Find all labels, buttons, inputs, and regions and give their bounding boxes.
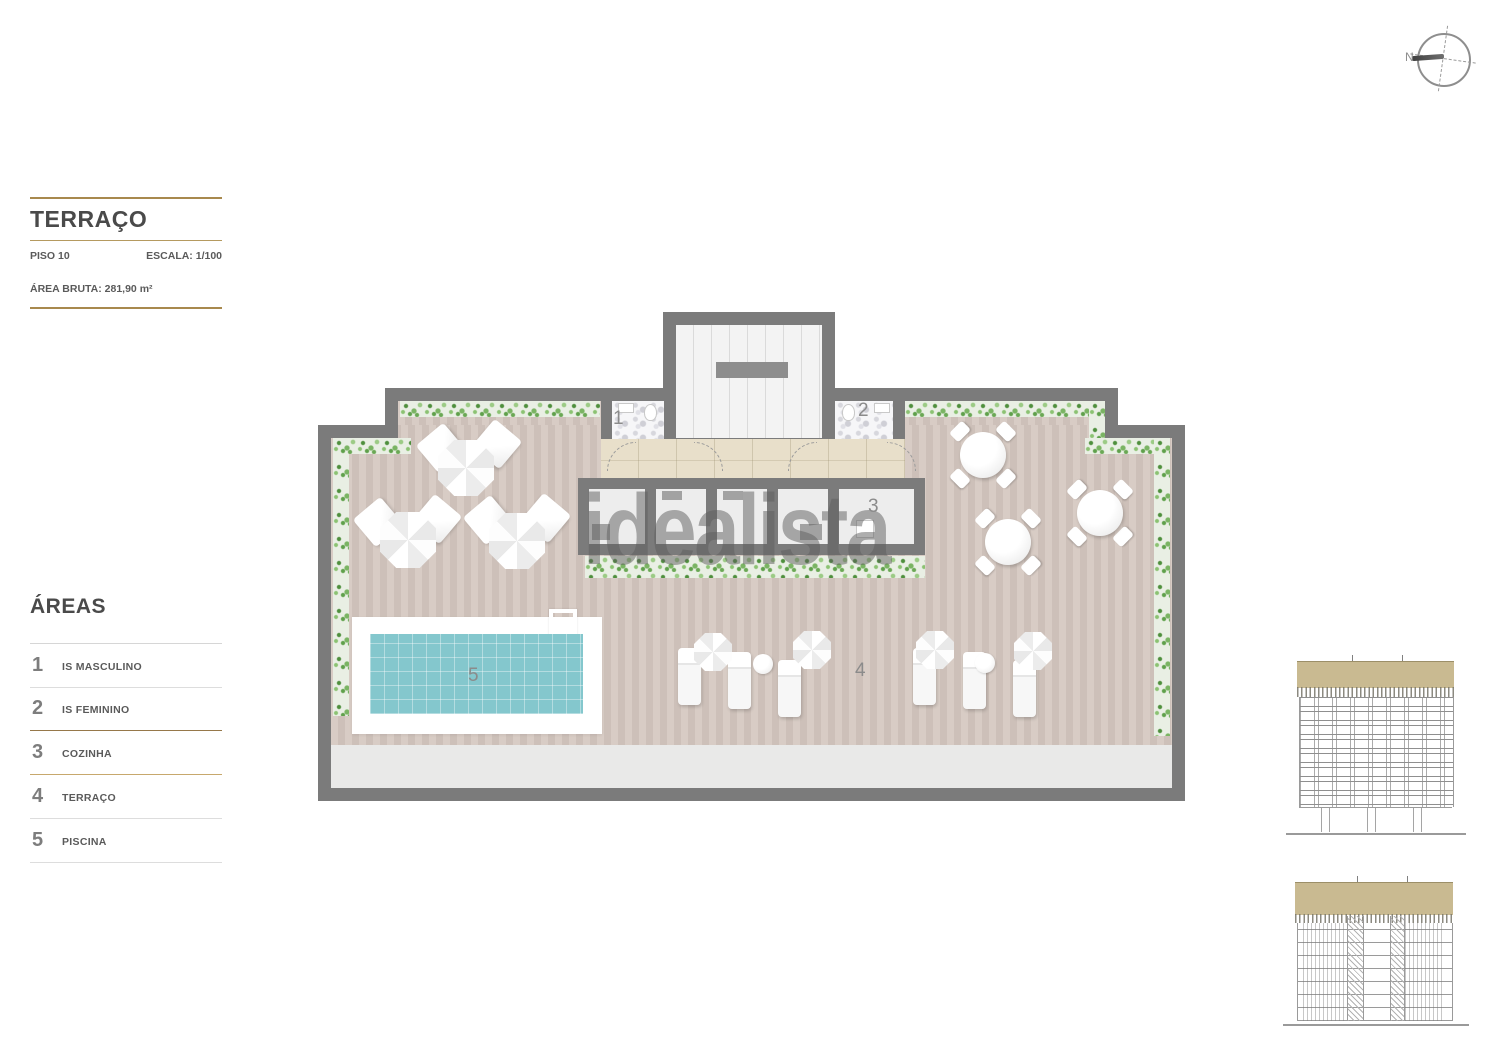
- ground-line: [1283, 1024, 1469, 1026]
- dining-set: [985, 519, 1031, 565]
- ground-line: [1286, 833, 1466, 835]
- ground-floor: [1299, 807, 1452, 832]
- sun-lounger: [728, 652, 751, 709]
- wall: [601, 388, 612, 445]
- dining-set: [1077, 490, 1123, 536]
- sink: [874, 403, 890, 413]
- area-number-is-masculino: 1: [613, 408, 624, 430]
- toilet: [644, 404, 657, 421]
- window-mullions: [1303, 923, 1347, 1021]
- balustrade: [1295, 914, 1453, 923]
- dining-table: [1077, 490, 1123, 536]
- planter-strip: [1154, 438, 1170, 736]
- wall: [1105, 388, 1118, 438]
- sun-lounger: [778, 660, 801, 717]
- toilet: [842, 404, 855, 421]
- building-elevation-rear: [1295, 876, 1453, 1022]
- wall: [893, 388, 905, 445]
- building-elevation-front: [1297, 655, 1454, 835]
- parasol: [916, 631, 954, 669]
- hatched-pilaster: [1390, 916, 1405, 1021]
- area-number-is-feminino: 2: [858, 400, 869, 422]
- balustrade: [1297, 687, 1454, 697]
- side-table: [753, 654, 773, 674]
- wall: [318, 425, 331, 801]
- planter-strip: [905, 401, 1103, 417]
- hatched-pilaster: [1347, 916, 1364, 1021]
- window-mullions: [1405, 923, 1445, 1021]
- wall: [318, 788, 1185, 801]
- floor-plan-sheet: N TERRAÇO PISO 10 ESCALA: 1/100 ÁREA BRU…: [0, 0, 1500, 1060]
- parasol: [438, 440, 494, 496]
- wall: [385, 388, 678, 401]
- parasol: [380, 512, 436, 568]
- planter-strip: [1085, 438, 1157, 454]
- planter-strip: [333, 438, 349, 716]
- parasol: [1014, 632, 1052, 670]
- area-number-cozinha: 3: [868, 496, 879, 518]
- area-number-terraco: 4: [855, 660, 866, 682]
- window-grid: [1299, 697, 1454, 807]
- edge-walkway: [331, 745, 1172, 788]
- side-table: [975, 653, 995, 673]
- wall: [1172, 425, 1185, 801]
- planter-strip: [1089, 401, 1105, 438]
- dining-set: [960, 432, 1006, 478]
- parasol: [489, 513, 545, 569]
- area-number-piscina: 5: [468, 665, 479, 687]
- stairwell: [676, 325, 822, 438]
- planter-strip: [400, 401, 600, 417]
- idealista-watermark: idealista: [583, 480, 889, 580]
- parasol: [793, 631, 831, 669]
- parasol: [694, 633, 732, 671]
- highlighted-top-floor: [1295, 882, 1453, 915]
- dining-table: [960, 432, 1006, 478]
- dining-table: [985, 519, 1031, 565]
- highlighted-top-floor: [1297, 661, 1454, 688]
- stair-landing: [716, 362, 788, 378]
